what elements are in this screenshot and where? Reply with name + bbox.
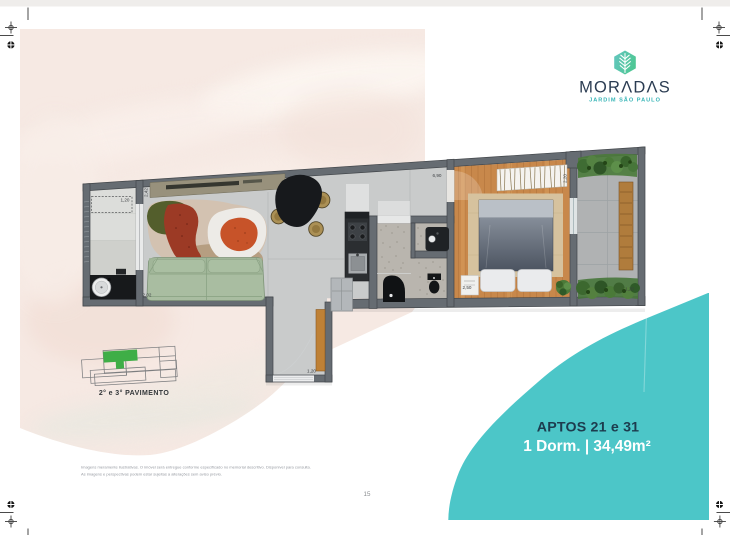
svg-text:2,02: 2,02 (143, 293, 152, 298)
svg-text:2,42: 2,42 (144, 188, 149, 197)
svg-text:Imagens meramente ilustrativas: Imagens meramente ilustrativas. O imóvel… (81, 465, 311, 470)
svg-text:As imagens e perspectivas pode: As imagens e perspectivas podem estar su… (81, 472, 222, 477)
svg-text:15: 15 (364, 491, 371, 498)
svg-text:1,20: 1,20 (625, 287, 634, 292)
svg-text:APTOS 21 e 31: APTOS 21 e 31 (537, 420, 640, 436)
svg-text:JARDIM SÃO PAULO: JARDIM SÃO PAULO (589, 97, 661, 104)
svg-text:1,20: 1,20 (307, 369, 316, 374)
svg-text:2,50: 2,50 (463, 285, 472, 290)
svg-text:2,20: 2,20 (563, 174, 568, 183)
svg-text:MORΛDΛS: MORΛDΛS (579, 79, 671, 97)
svg-text:1,20: 1,20 (121, 198, 130, 203)
svg-text:2° e 3° PAVIMENTO: 2° e 3° PAVIMENTO (99, 389, 170, 397)
svg-text:6,90: 6,90 (433, 173, 442, 178)
svg-text:1 Dorm. | 34,49m²: 1 Dorm. | 34,49m² (523, 438, 650, 455)
